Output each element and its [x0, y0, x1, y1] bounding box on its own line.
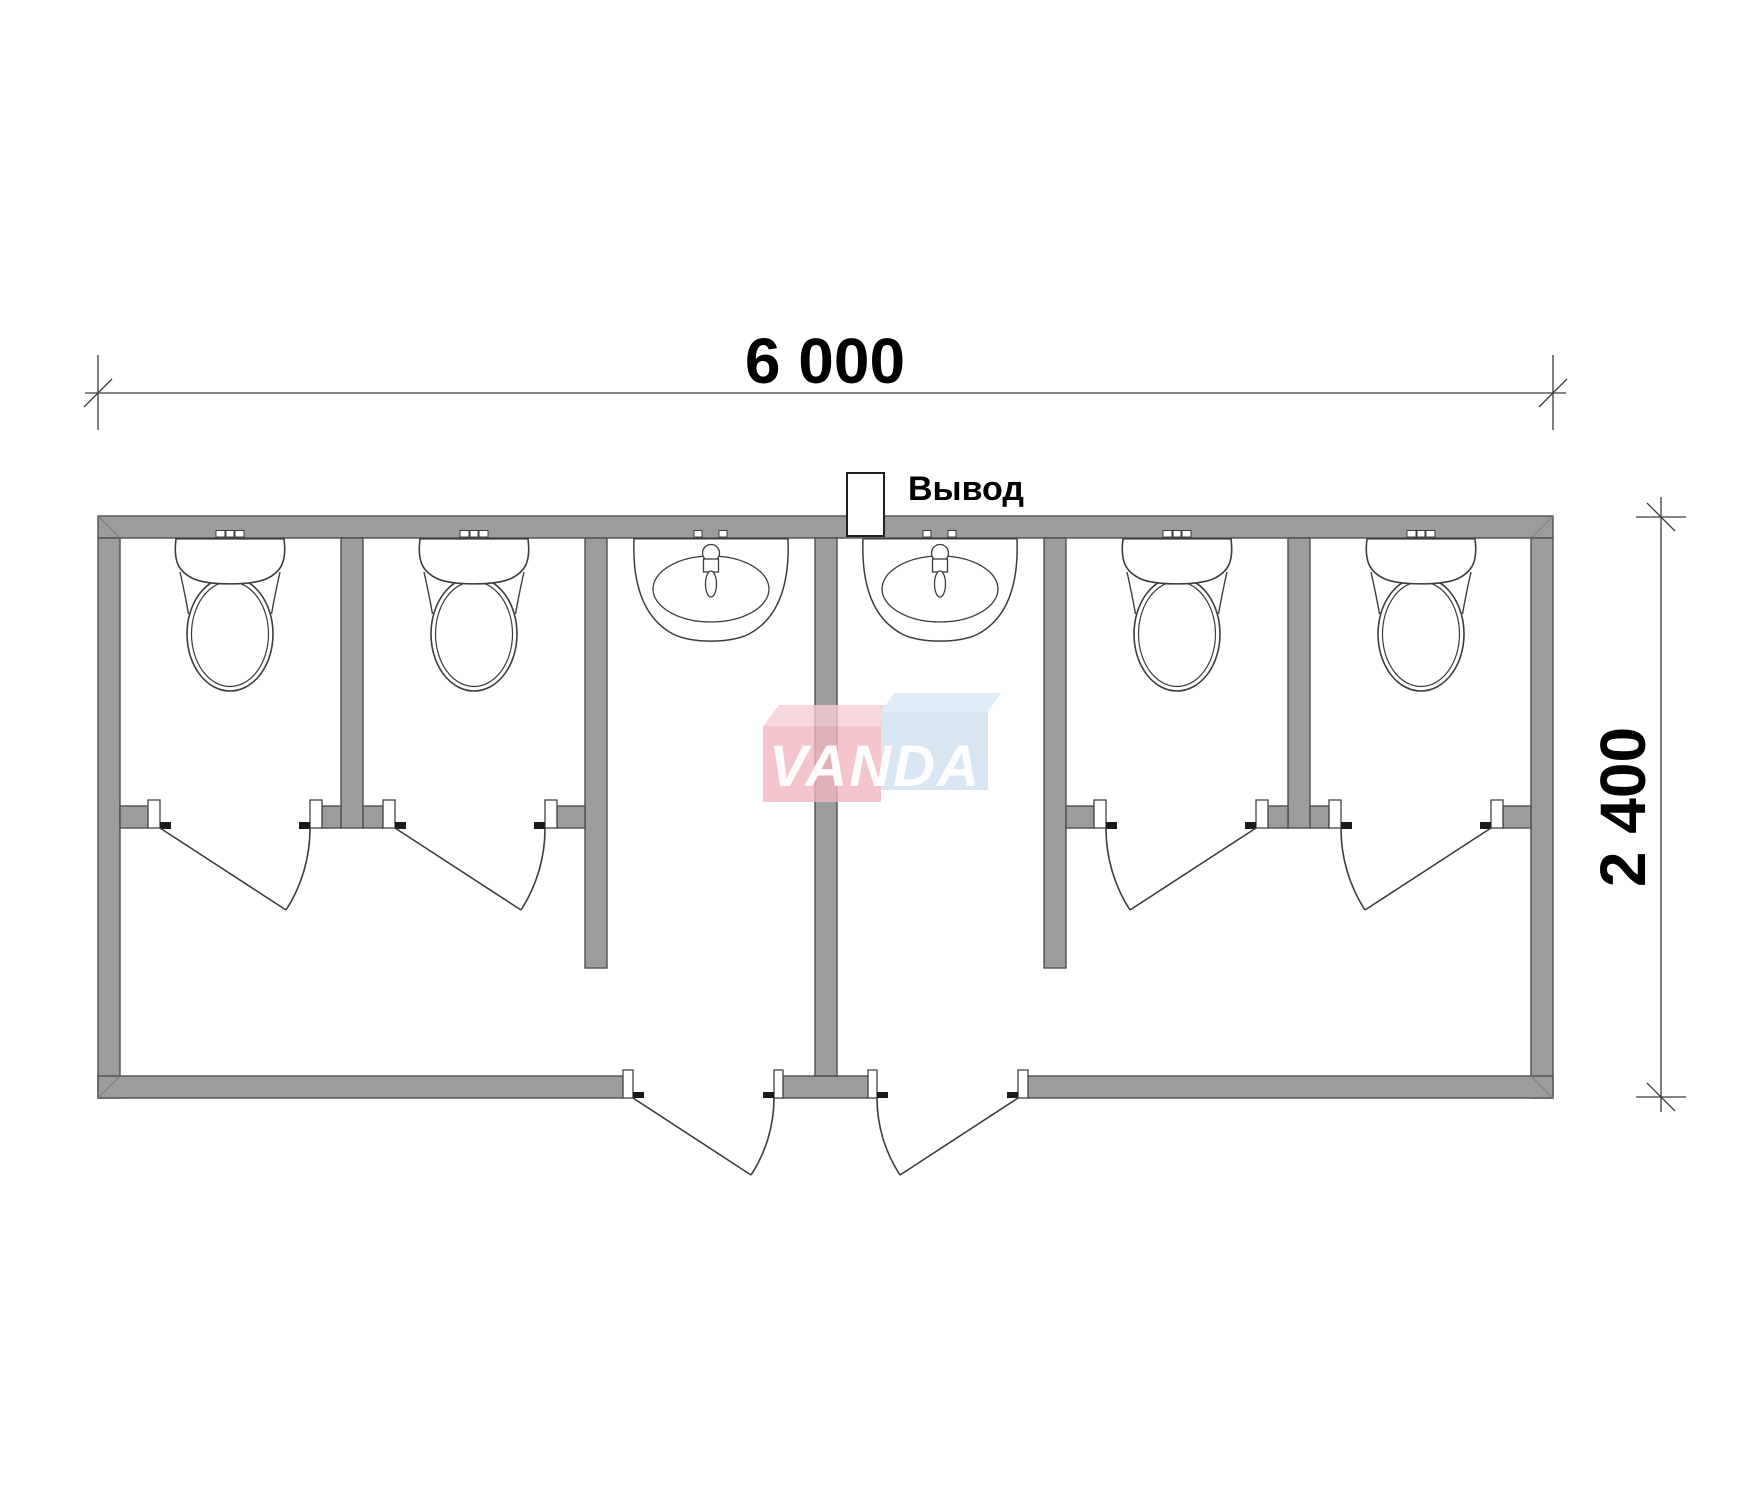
- stall-front-wall: [557, 806, 585, 828]
- wall-bottom-left: [98, 1076, 623, 1098]
- stall-front-wall: [1268, 806, 1288, 828]
- floor-plan-page: Вывод 6 000 2 400 VANDA: [0, 0, 1763, 1503]
- watermark-left-block-top: [763, 705, 897, 726]
- dimension-width-label: 6 000: [745, 325, 905, 397]
- outlet-label: Вывод: [908, 470, 1024, 508]
- entrance-door-right: [877, 1098, 1018, 1175]
- stall-door-1: [160, 828, 310, 910]
- floor-plan-canvas: Вывод 6 000 2 400 VANDA: [0, 0, 1763, 1503]
- washbasin-right: [863, 531, 1017, 642]
- toilet-1: [175, 531, 285, 692]
- washbasin-left: [634, 531, 788, 642]
- partition-central: [815, 538, 837, 1076]
- wall-left: [98, 538, 120, 1098]
- partition-stall1-stall2: [341, 538, 363, 828]
- stall-front-wall: [1066, 806, 1094, 828]
- stall-front-wall: [363, 806, 383, 828]
- stall-door-4: [1341, 828, 1491, 910]
- toilet-2: [419, 531, 529, 692]
- stall-front-wall: [1503, 806, 1531, 828]
- watermark-right-block-top: [881, 693, 1001, 712]
- wall-bottom-stub: [783, 1076, 868, 1098]
- watermark-text: VANDA: [769, 734, 981, 799]
- dimension-depth-label: 2 400: [1587, 727, 1659, 887]
- wall-right: [1531, 538, 1553, 1098]
- partition-stall3-stall4: [1288, 538, 1310, 828]
- partition-stall2-washroom: [585, 538, 607, 968]
- outlet-symbol: [847, 473, 884, 536]
- stall-door-2: [395, 828, 545, 910]
- toilet-3: [1122, 531, 1232, 692]
- wall-bottom-right: [1028, 1076, 1553, 1098]
- toilet-4: [1366, 531, 1476, 692]
- wall-top: [98, 516, 1553, 538]
- stall-front-wall: [322, 806, 341, 828]
- partition-washroom-stall3: [1044, 538, 1066, 968]
- stall-front-wall: [1310, 806, 1329, 828]
- stall-door-3: [1106, 828, 1256, 910]
- entrance-door-left: [633, 1098, 774, 1175]
- stall-front-wall: [120, 806, 148, 828]
